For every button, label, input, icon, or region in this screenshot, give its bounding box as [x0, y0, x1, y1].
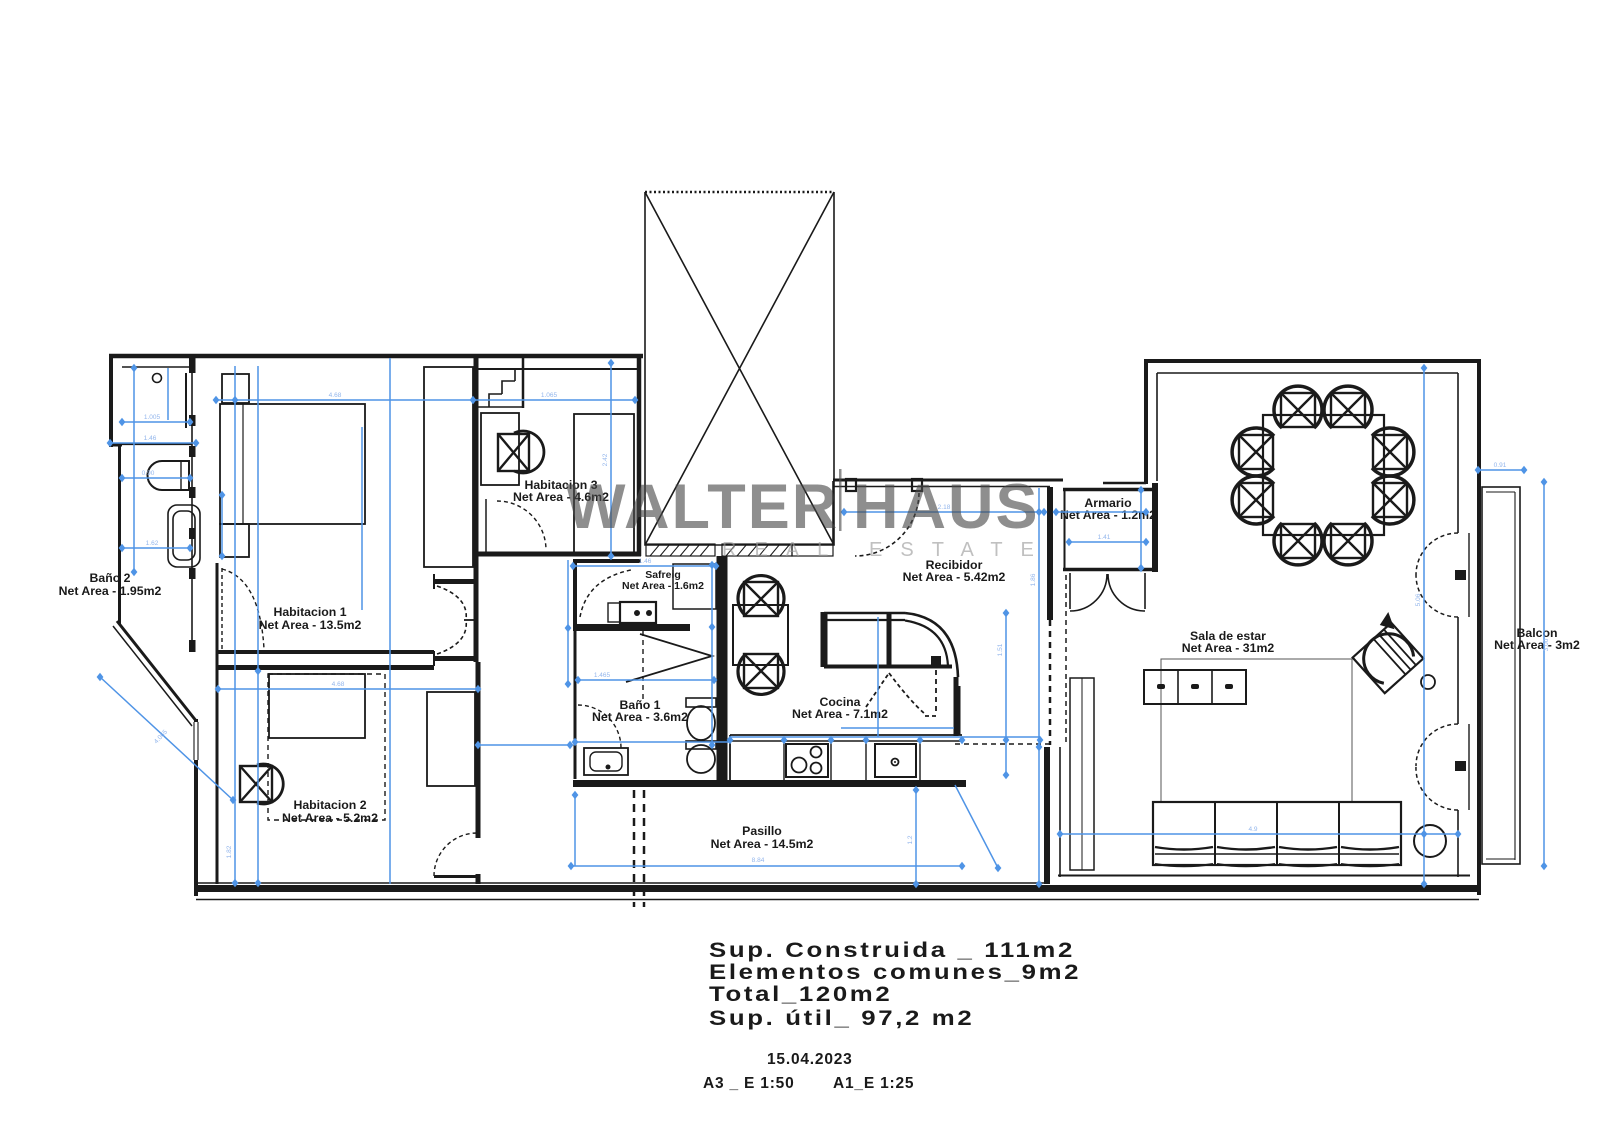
svg-text:0.91: 0.91 [1494, 462, 1507, 469]
svg-text:HAUS: HAUS [853, 472, 1040, 542]
svg-text:1.46: 1.46 [144, 435, 157, 442]
svg-text:1.51: 1.51 [997, 643, 1004, 656]
svg-text:Net Area - 5.2m2: Net Area - 5.2m2 [282, 811, 378, 825]
svg-text:4.9: 4.9 [1248, 826, 1257, 833]
svg-text:1.2: 1.2 [907, 835, 914, 844]
svg-text:Total_120m2: Total_120m2 [709, 983, 892, 1007]
svg-text:Sup. útil_ 97,2 m2: Sup. útil_ 97,2 m2 [709, 1007, 974, 1031]
svg-text:Habitacion 1: Habitacion 1 [273, 605, 346, 619]
svg-text:Net Area - 1.95m2: Net Area - 1.95m2 [59, 584, 162, 598]
svg-text:Net Area - 31m2: Net Area - 31m2 [1182, 641, 1275, 655]
svg-text:A1_E 1:25: A1_E 1:25 [833, 1075, 914, 1092]
svg-text:2.42: 2.42 [602, 453, 609, 466]
svg-text:Net Area - 7.1m2: Net Area - 7.1m2 [792, 707, 888, 721]
svg-text:Net Area - 3.6m2: Net Area - 3.6m2 [592, 710, 688, 724]
svg-text:Sup. Construida _ 111m2: Sup. Construida _ 111m2 [709, 939, 1075, 963]
svg-text:1.065: 1.065 [541, 392, 558, 399]
svg-text:1.62: 1.62 [146, 540, 159, 547]
svg-text:Net Area - 13.5m2: Net Area - 13.5m2 [259, 618, 362, 632]
svg-text:A3 _ E 1:50: A3 _ E 1:50 [703, 1075, 795, 1092]
svg-text:15.04.2023: 15.04.2023 [767, 1051, 853, 1068]
svg-text:1.41: 1.41 [1098, 534, 1111, 541]
svg-text:1.465: 1.465 [594, 672, 611, 679]
svg-text:Net Area - 1.6m2: Net Area - 1.6m2 [622, 580, 704, 592]
svg-text:1.005: 1.005 [144, 414, 161, 421]
svg-text:8.84: 8.84 [752, 857, 765, 864]
svg-text:Pasillo: Pasillo [742, 824, 782, 838]
svg-text:Baño 2: Baño 2 [90, 571, 131, 585]
svg-text:Net Area - 5.42m2: Net Area - 5.42m2 [903, 570, 1006, 584]
svg-text:Net Area - 3m2: Net Area - 3m2 [1494, 638, 1580, 652]
svg-text:WALTER: WALTER [566, 472, 839, 542]
svg-text:5.06: 5.06 [1415, 593, 1422, 606]
svg-text:1.86: 1.86 [1030, 573, 1037, 586]
svg-text:Habitacion 2: Habitacion 2 [293, 798, 366, 812]
svg-text:0.90: 0.90 [142, 470, 155, 477]
svg-text:4.68: 4.68 [332, 681, 345, 688]
svg-text:Elementos comunes_9m2: Elementos comunes_9m2 [709, 961, 1081, 985]
svg-text:4.68: 4.68 [329, 392, 342, 399]
svg-text:REAL ESTATE: REAL ESTATE [722, 539, 1052, 561]
svg-text:3.00: 3.00 [1543, 638, 1550, 651]
svg-text:1.82: 1.82 [226, 845, 233, 858]
svg-text:1.46: 1.46 [639, 558, 652, 565]
svg-text:Net Area - 14.5m2: Net Area - 14.5m2 [711, 837, 814, 851]
